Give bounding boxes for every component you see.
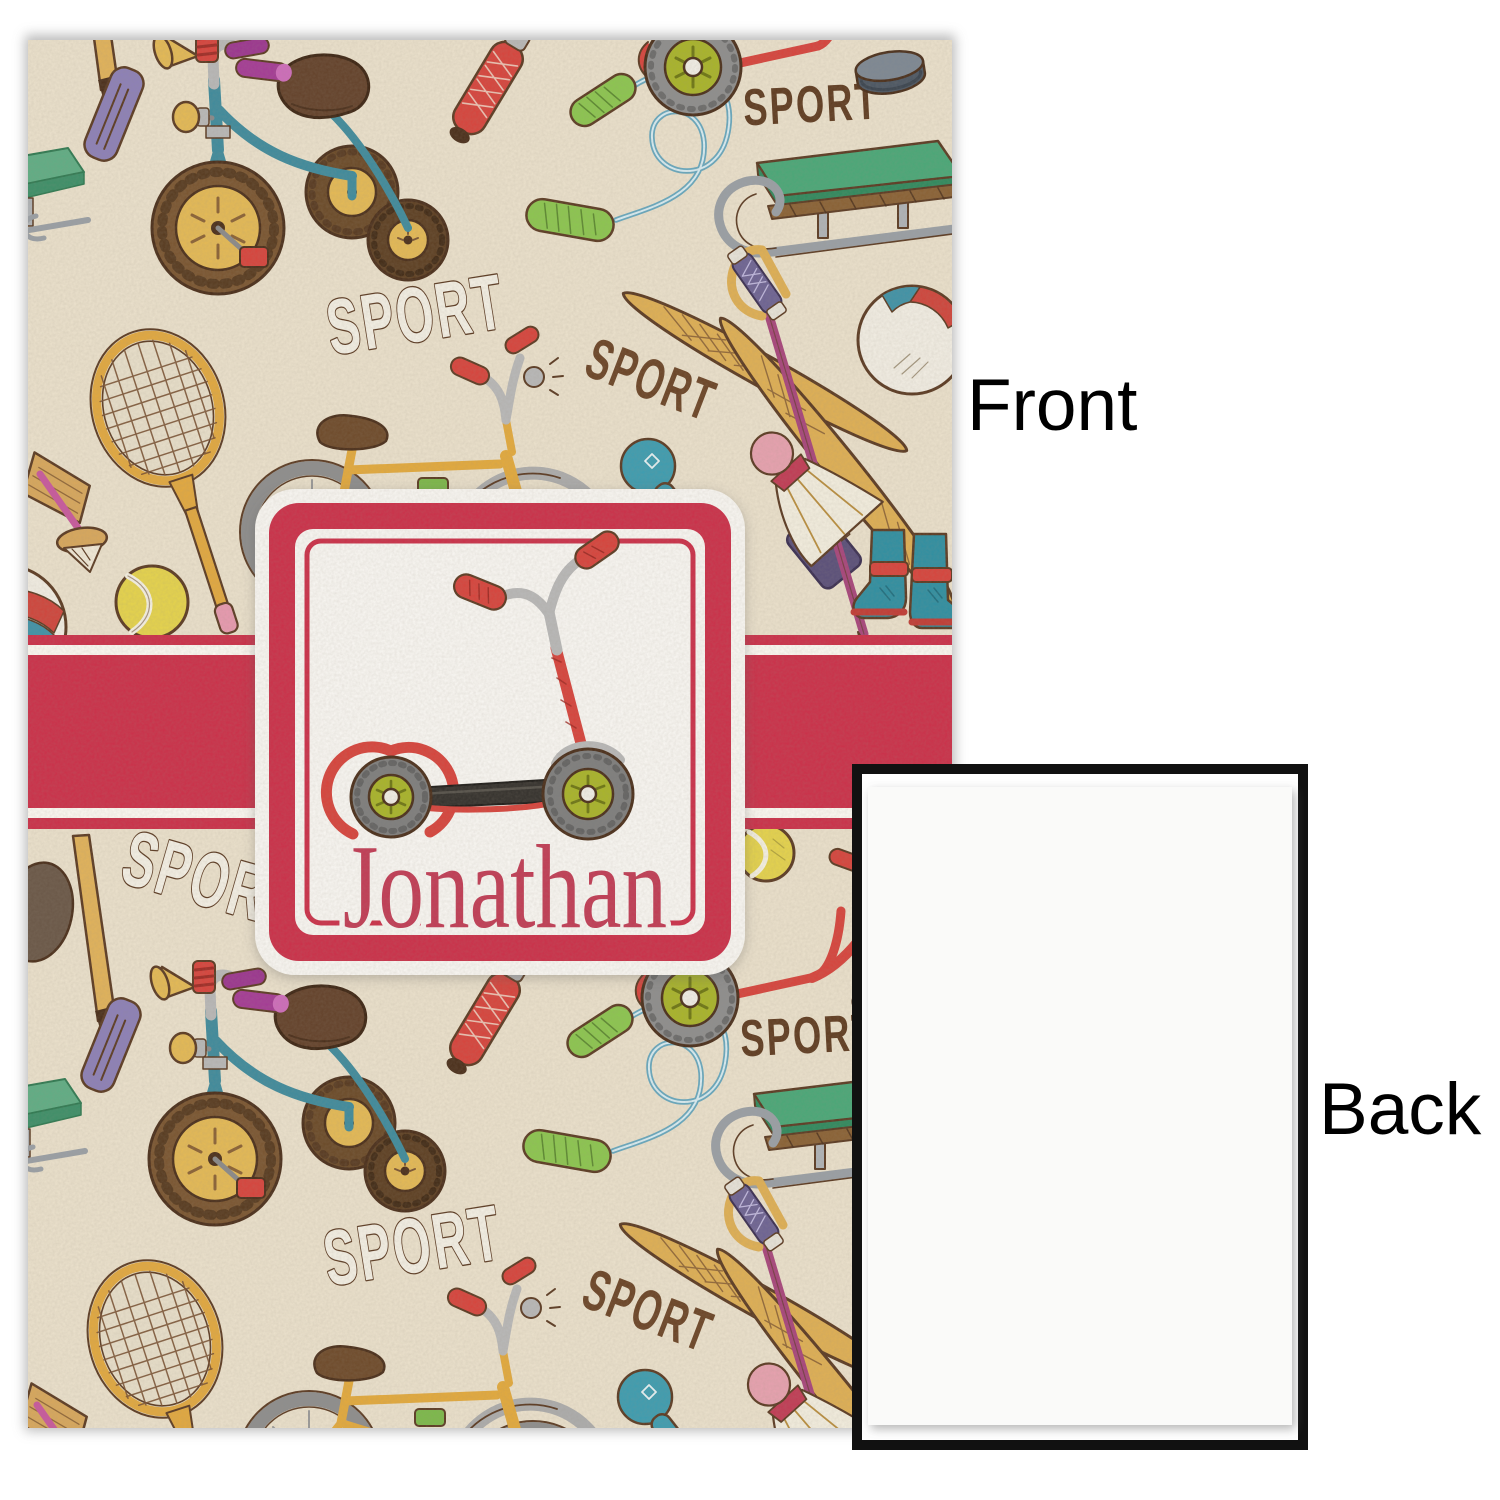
svg-text:Back: Back (1319, 1069, 1482, 1150)
svg-text:Front: Front (967, 365, 1137, 446)
